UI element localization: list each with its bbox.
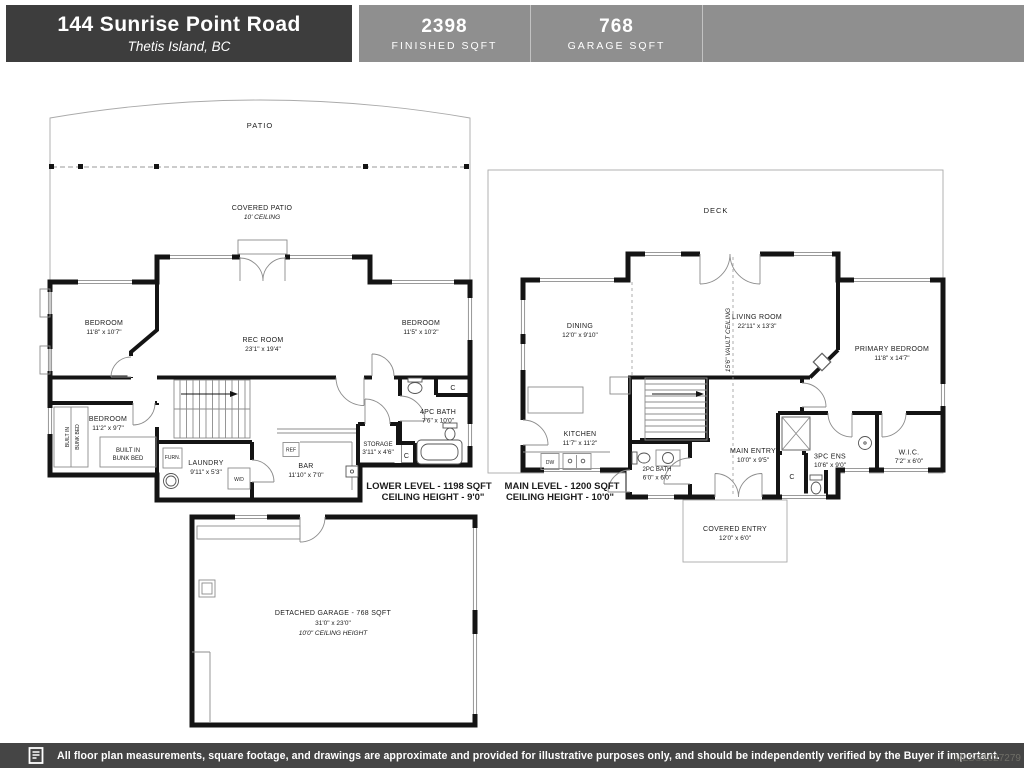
covered-entry-label: COVERED ENTRY [703,526,767,533]
furnace-label: FURN. [165,455,180,461]
stat-value: 2398 [421,16,467,38]
lower-level-plan: PATIO COVERED PATIO 10' CEILING BEDROOM … [40,100,492,503]
wic-label: W.I.C. [899,450,920,457]
lower-level-ceiling: CEILING HEIGHT - 9'0" [382,492,485,503]
primary-bedroom-label: PRIMARY BEDROOM [855,346,929,353]
floorplan-canvas: PATIO COVERED PATIO 10' CEILING BEDROOM … [0,0,1024,768]
storage-dims: 3'11" x 4'6" [362,449,394,456]
storage-label: STORAGE [363,442,392,448]
vault-ceiling-label: 15'6" VAULT CEILING [725,308,732,372]
covered-entry-dims: 12'0" x 6'0" [719,535,752,542]
bath4pc-label: 4PC BATH [420,409,456,416]
dishwasher-label: DW [546,460,555,466]
address-title: 144 Sunrise Point Road [57,13,300,36]
lower-level-caption: LOWER LEVEL - 1198 SQFT [366,481,492,492]
stat-label: GARAGE SQFT [568,40,666,52]
bath2pc-dims: 6'0" x 6'0" [643,475,672,482]
washer-dryer-label: W/D [234,477,244,483]
bedroom3-dims: 11'2" x 9'7" [92,425,124,432]
dining-dims: 12'0" x 9'10" [562,332,598,339]
stat-finished-sqft: 2398 FINISHED SQFT [359,5,531,62]
kitchen-dims: 11'7" x 11'2" [563,440,598,447]
address-banner: 144 Sunrise Point Road Thetis Island, BC [6,5,352,62]
bedroom3-label: BEDROOM [89,416,127,423]
main-entry-dims: 10'0" x 9'5" [737,457,770,464]
main-level-ceiling: CEILING HEIGHT - 10'0" [506,492,614,503]
patio-label: PATIO [247,121,273,130]
stat-label: FINISHED SQFT [392,40,498,52]
stats-bar: 2398 FINISHED SQFT 768 GARAGE SQFT [359,5,1024,62]
garage-dims: 31'0" x 23'0" [315,620,351,627]
bunk-bed-label: BUNK BED [113,456,144,462]
bedroom1-label: BEDROOM [85,320,123,327]
ensuite-label: 3PC ENS [814,454,846,461]
bedroom1-dims: 11'8" x 10'7" [86,329,122,336]
covered-patio-label: COVERED PATIO [232,205,293,212]
living-room-label: LIVING ROOM [732,314,782,321]
disclaimer-bar: All floor plan measurements, square foot… [0,743,1024,768]
kitchen-label: KITCHEN [564,431,597,438]
bunk-bed-label: BUILT IN [65,427,71,447]
ensuite-dims: 10'6" x 9'0" [814,462,847,469]
document-icon [28,747,45,764]
living-room-dims: 22'11" x 13'3" [738,323,777,330]
wic-dims: 7'2" x 6'0" [895,458,924,465]
bunk-bed-label: BUNK BED [75,424,81,450]
covered-patio-ceiling: 10' CEILING [244,214,280,221]
bedroom2-dims: 11'5" x 10'2" [403,329,439,336]
main-level-caption: MAIN LEVEL - 1200 SQFT [505,481,620,492]
disclaimer-text: All floor plan measurements, square foot… [57,750,1000,762]
closet-label: C [789,474,794,481]
rec-room-label: REC ROOM [243,337,284,344]
primary-bedroom-dims: 11'8" x 14'7" [874,355,910,362]
fridge-label: REF [286,448,296,454]
laundry-label: LAUNDRY [188,460,223,467]
garage-plan: DETACHED GARAGE - 768 SQFT 31'0" x 23'0"… [192,514,479,726]
bath4pc-dims: 7'6" x 10'0" [422,418,455,425]
address-city: Thetis Island, BC [128,39,231,54]
deck-label: DECK [704,206,729,215]
stat-garage-sqft: 768 GARAGE SQFT [531,5,703,62]
rec-room-dims: 23'1" x 19'4" [245,346,281,353]
main-entry-label: MAIN ENTRY [730,448,776,455]
main-level-plan: DECK DINING 12'0" x 9'10" KITCHEN 11'7" … [488,170,947,562]
dining-label: DINING [567,323,593,330]
garage-caption: DETACHED GARAGE - 768 SQFT [275,610,392,617]
laundry-dims: 9'11" x 5'3" [190,469,222,476]
closet-label: C [450,385,455,392]
floorplan-page: PATIO COVERED PATIO 10' CEILING BEDROOM … [0,0,1024,768]
garage-ceiling: 10'0" CEILING HEIGHT [299,630,369,637]
bedroom2-label: BEDROOM [402,320,440,327]
stat-value: 768 [599,16,634,38]
bar-label: BAR [298,463,313,470]
bunk-bed-label: BUILT IN [116,448,140,454]
bath2pc-label: 2PC BATH [643,467,672,473]
closet-label: C [404,453,409,460]
bar-dims: 11'10" x 7'0" [288,472,324,479]
mls-number: MLS®1027279 [954,753,1021,764]
